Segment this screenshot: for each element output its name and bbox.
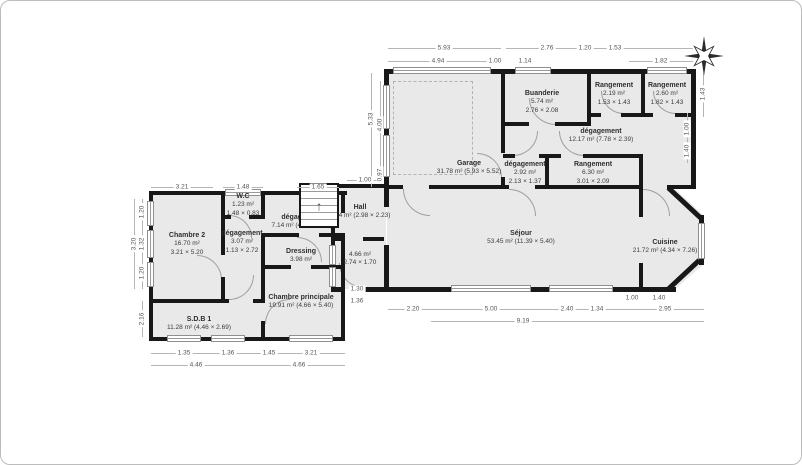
room-area: 1.23 m² [213,201,273,209]
dim-label: 1.00 [624,295,641,302]
dim-label: 5.33 [368,111,375,128]
compass-rose-icon [683,35,725,77]
room-label-degagement-1: dégagement 3.07 m² 1.13 × 2.72 [209,229,275,255]
room-area: 11.28 m² (4.46 × 2.69) [149,324,249,332]
dim-label: 1.45 [261,350,278,357]
dim-label: 1.00 [357,177,374,184]
wall [583,154,643,158]
window [383,85,390,129]
dim-label: 2.20 [405,306,422,313]
floor-plan: ↑ Chambre 2 16.70 m² 3.21 × 5.20 W.C 1.2… [0,0,802,465]
wall [319,233,345,237]
room-dims: 2.74 × 1.70 [331,259,389,267]
window [211,335,245,342]
room-name: dégagement [497,160,553,169]
dim-label: 1.20 [139,265,146,282]
wall [675,113,691,117]
dim-label: 1.20 [139,204,146,221]
dim-label: 4.46 [188,362,205,369]
room-label-chambre-principale: Chambre principale 19.91 m² (4.66 × 5.40… [251,293,351,311]
dim-label: 1.82 [653,58,670,65]
room-dims: 1.13 × 2.72 [209,247,275,255]
room-label-sejour: Séjour 53.45 m² (11.39 × 5.40) [461,229,581,247]
wall [331,184,388,188]
room-label-degagement-3: dégagement 12.17 m² (7.78 × 2.39) [546,127,656,145]
dim-label: 4.66 [291,362,308,369]
dim-line [431,321,704,322]
dim-label: 1.40 [684,143,691,160]
room-label-entree: 4.66 m² 2.74 × 1.70 [331,251,389,268]
dim-line [506,48,693,49]
dim-label: 1.14 [517,58,534,65]
window [647,67,687,74]
room-dims: 1.82 × 1.43 [637,99,697,107]
room-area: 3.98 m² [267,256,335,264]
room-name: W.C [213,192,273,201]
room-area: 2.19 m² [584,90,644,98]
wall [331,287,341,292]
wall [149,299,229,303]
window [549,285,613,292]
room-dims: 2.76 × 2.08 [502,107,582,115]
wall [261,321,265,341]
room-name: Rangement [559,160,627,169]
wall [503,122,529,126]
wall [265,265,291,269]
dim-label: 9.19 [515,318,532,325]
room-area: 4.66 m² [331,251,389,259]
room-name: Séjour [461,229,581,238]
room-label-sdb-1: S.D.B 1 11.28 m² (4.46 × 2.69) [149,315,249,333]
dim-label: 1.35 [176,350,193,357]
dim-label: 4.00 [377,117,384,134]
room-area: 5.74 m² [502,98,582,106]
room-name: Rangement [637,81,697,90]
dim-label: 1.20 [577,45,594,52]
room-area: 6.30 m² [559,169,627,177]
room-area: 53.45 m² (11.39 × 5.40) [461,238,581,246]
room-name: Buanderie [502,89,582,98]
dim-label: 1.65 [310,184,327,191]
window [147,262,154,287]
stairs-up-arrow-icon: ↑ [316,199,323,212]
room-name: Chambre principale [251,293,351,302]
dim-label: 1.53 [607,45,624,52]
dim-label: 1.34 [589,306,606,313]
dim-label: 4.94 [430,58,447,65]
dim-line [371,73,372,187]
room-area: 19.91 m² (4.66 × 5.40) [251,302,351,310]
wall [389,185,403,189]
dim-label: 1.43 [700,86,707,103]
dim-label: 5.00 [483,306,500,313]
dim-label: 1.36 [349,298,366,305]
window [289,335,333,342]
dim-label: 1.32 [139,236,146,253]
room-label-rangement-1: Rangement 2.19 m² 1.53 × 1.43 [584,81,644,107]
room-area: 12.17 m² (7.78 × 2.39) [546,136,656,144]
room-dims: 1.53 × 1.43 [584,99,644,107]
room-label-degagement-4: dégagement 2.92 m² 2.13 × 1.37 [497,160,553,186]
wall [639,263,643,292]
window [167,335,201,342]
wall [621,113,653,117]
room-label-cuisine: Cuisine 21.72 m² (4.34 × 7.26) [615,238,715,256]
dim-label: 1.48 [235,184,252,191]
window [515,67,551,74]
dim-label: 1.00 [684,121,691,138]
wall [363,237,384,241]
room-area: 2.60 m² [637,90,697,98]
window [393,67,491,74]
room-label-rangement-3: Rangement 6.30 m² 3.01 × 2.09 [559,160,627,186]
window [451,285,531,292]
room-area: 21.72 m² (4.34 × 7.26) [615,247,715,255]
room-area: 3.07 m² [209,238,275,246]
dim-label: 2.76 [539,45,556,52]
room-name: dégagement [546,127,656,136]
wall [333,237,341,241]
wall [539,154,561,158]
wall [639,189,643,217]
dim-label: 5.93 [436,45,453,52]
room-dims: 3.01 × 2.09 [559,178,627,186]
room-name: Rangement [584,81,644,90]
room-name: Dressing [267,247,335,256]
window [329,267,336,287]
dim-label: 1.36 [220,350,237,357]
dim-label: 3.21 [303,350,320,357]
room-dims: 2.13 × 1.37 [497,178,553,186]
dim-label: 1.00 [487,58,504,65]
wall [589,113,601,117]
wall [503,154,515,158]
dim-label: 1.30 [349,286,366,293]
room-name: Cuisine [615,238,715,247]
dim-label: 2.16 [139,311,146,328]
room-label-buanderie: Buanderie 5.74 m² 2.76 × 2.08 [502,89,582,115]
window [147,201,154,226]
room-label-dressing: Dressing 3.98 m² [267,247,335,265]
dim-label: 1.40 [651,295,668,302]
dim-label: 0.97 [377,167,384,184]
room-label-rangement-2: Rangement 2.60 m² 1.82 × 1.43 [637,81,697,107]
window [383,135,390,177]
dim-label: 2.40 [559,306,576,313]
dim-label: 3.20 [131,236,138,253]
dim-label: 3.21 [174,184,191,191]
wall [555,122,589,126]
room-name: S.D.B 1 [149,315,249,324]
room-area: 2.92 m² [497,169,553,177]
dim-label: 2.95 [657,306,674,313]
